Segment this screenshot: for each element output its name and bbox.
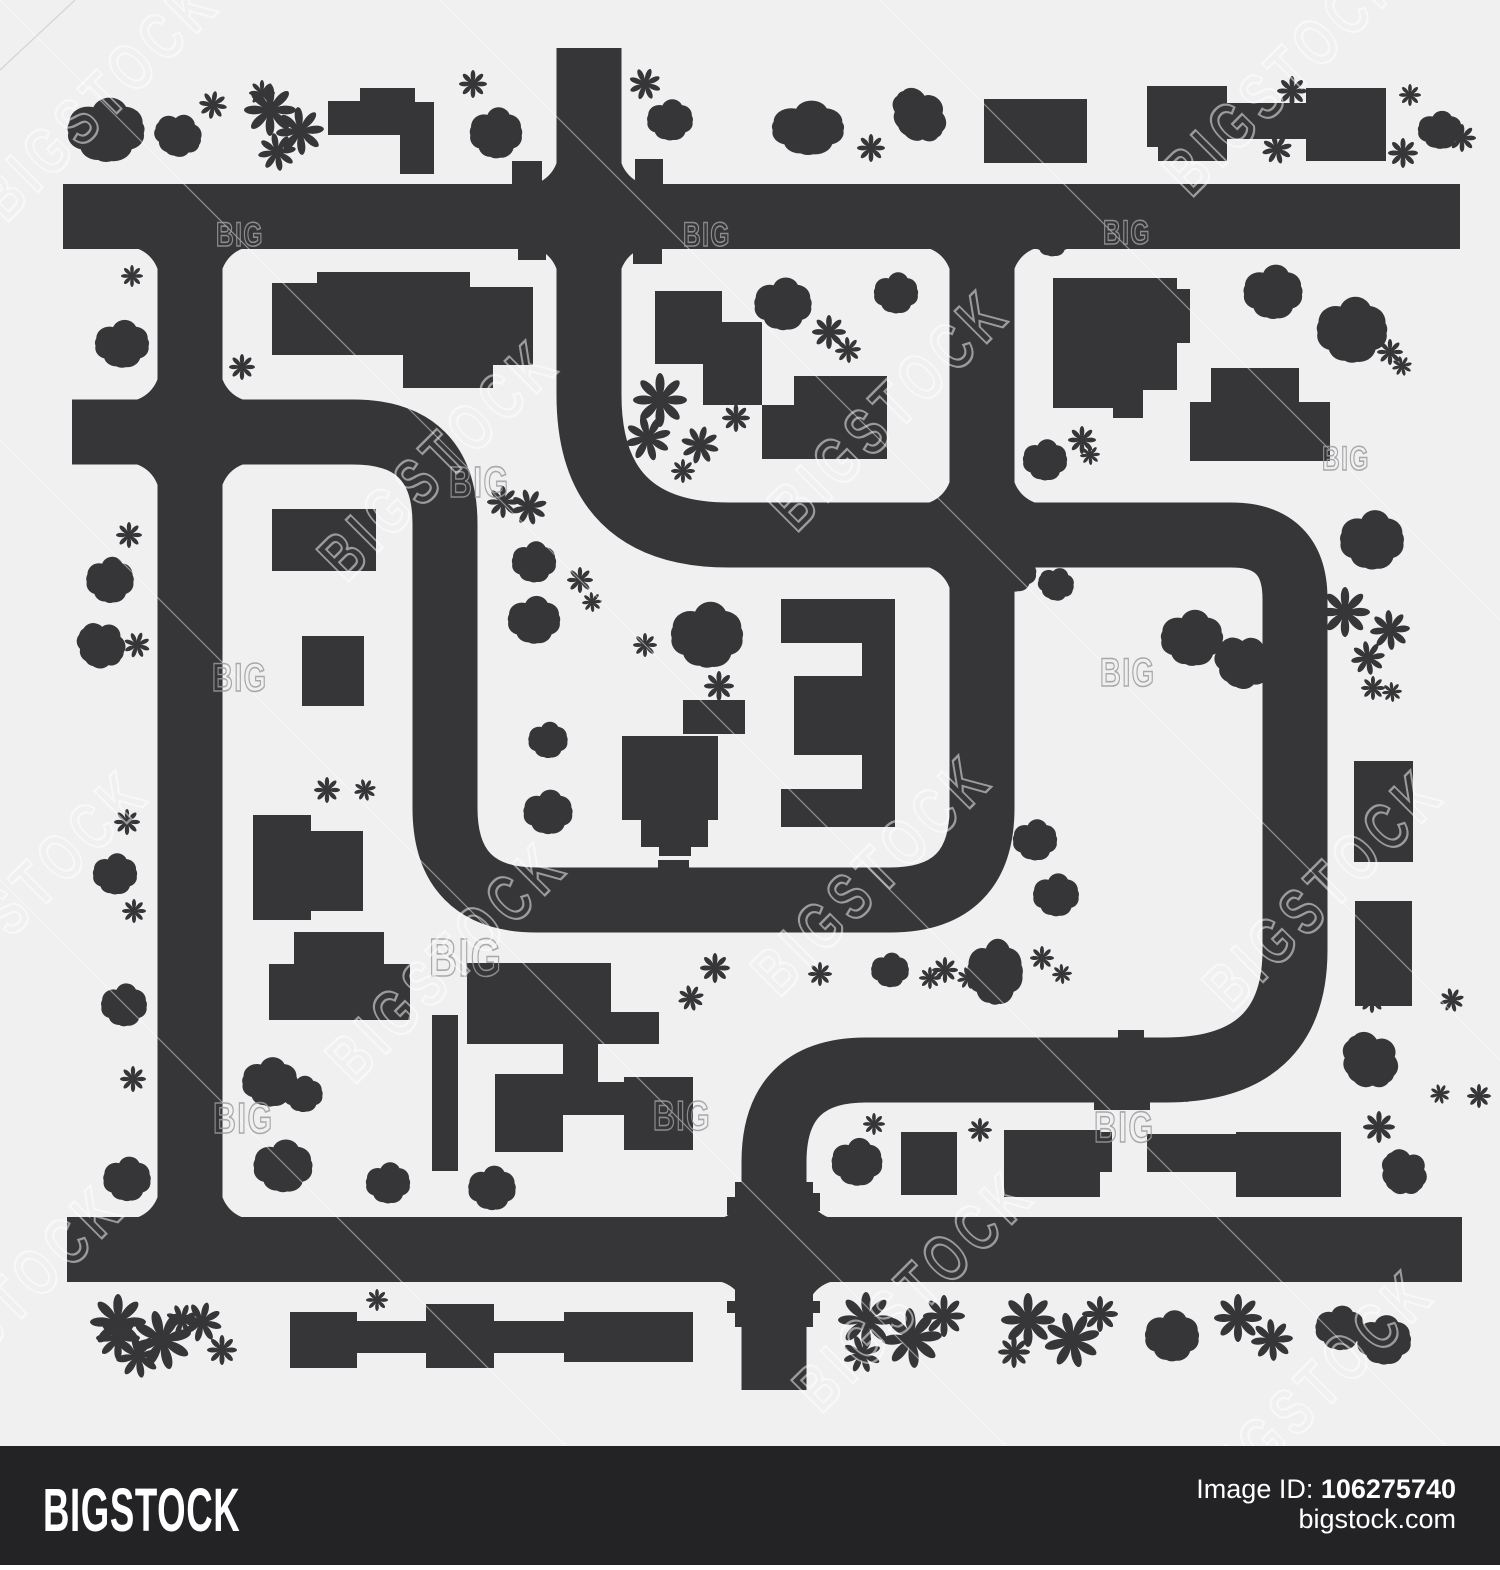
- svg-text:BIG: BIG: [1100, 650, 1156, 695]
- svg-text:bigstock.com: bigstock.com: [1298, 1504, 1456, 1534]
- svg-text:BIG: BIG: [216, 216, 264, 254]
- svg-text:BIG: BIG: [1322, 440, 1370, 478]
- svg-text:BIG: BIG: [653, 1092, 711, 1139]
- svg-text:BIG: BIG: [1094, 1103, 1155, 1152]
- svg-text:BIG: BIG: [212, 655, 268, 700]
- svg-text:BIG: BIG: [213, 1094, 274, 1143]
- svg-text:BIG: BIG: [1103, 214, 1151, 252]
- svg-text:BIGSTOCK: BIGSTOCK: [43, 1475, 240, 1544]
- svg-text:Image ID: 106275740: Image ID: 106275740: [1196, 1474, 1456, 1504]
- svg-text:BIG: BIG: [683, 216, 731, 254]
